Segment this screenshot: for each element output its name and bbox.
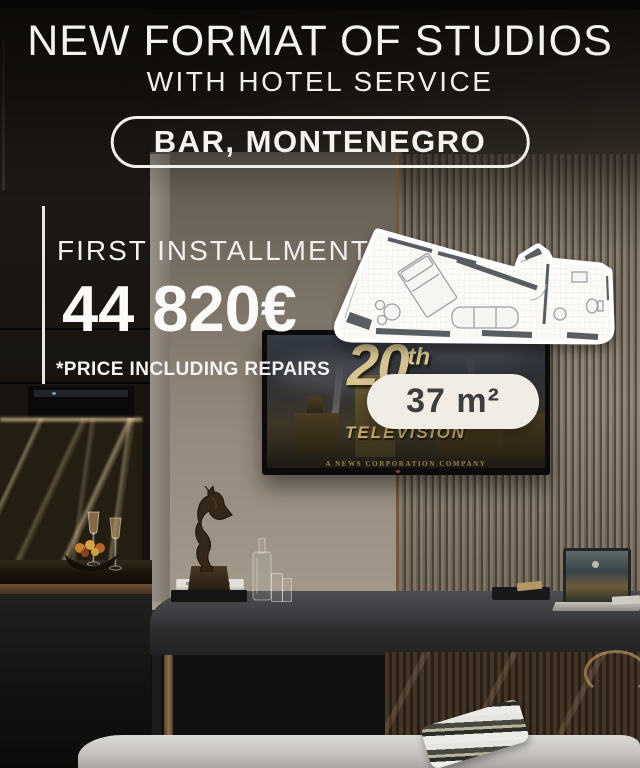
horse-statue (182, 486, 238, 572)
under-cabinet-light (0, 418, 142, 421)
studio-promo-poster: 20th TELEVISION A NEWS CORPORATION COMPA… (0, 0, 640, 768)
cabinet-seam (0, 382, 150, 384)
bed-bench (78, 735, 640, 768)
price-value: 44 820€ (62, 271, 297, 346)
tv-caption: A NEWS CORPORATION COMPANY (267, 460, 545, 468)
tv-standby-light (396, 470, 400, 473)
oven-control-panel (34, 390, 128, 397)
tv-building (295, 413, 339, 455)
drinking-glass (282, 578, 292, 602)
laptop-wallpaper-moon (592, 561, 599, 568)
location-badge: BAR, MONTENEGRO (111, 116, 530, 168)
page-title: NEW FORMAT OF STUDIOS (0, 17, 640, 66)
book-stack-black (171, 590, 247, 602)
area-badge: 37 m² (367, 374, 539, 429)
oven-display-light (52, 392, 56, 395)
floor-plan (332, 220, 622, 360)
fruit-bowl (60, 536, 122, 576)
price-disclaimer: *PRICE INCLUDING REPAIRS (56, 359, 330, 381)
gold-lamp-shade (584, 650, 640, 696)
page-subtitle: WITH HOTEL SERVICE (0, 66, 640, 98)
plan-sofa (452, 307, 518, 328)
price-divider-line (42, 206, 45, 384)
papers (612, 595, 640, 604)
first-installment-label: FIRST INSTALLMENT (57, 235, 370, 267)
